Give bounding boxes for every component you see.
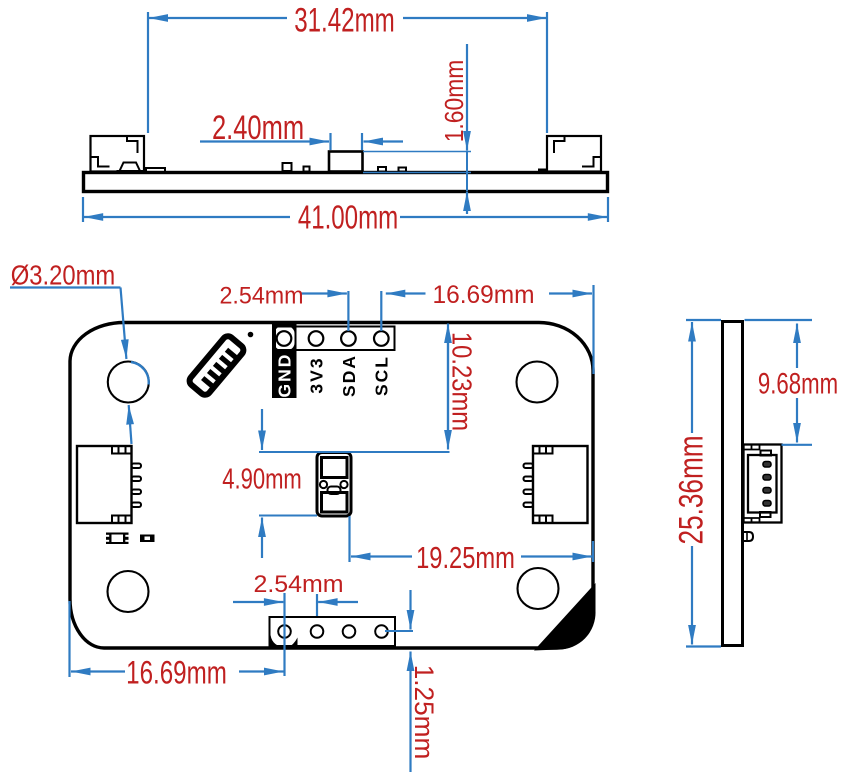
svg-text:3V3: 3V3 [306,356,326,393]
svg-text:1.25mm: 1.25mm [409,665,439,760]
svg-text:10.23mm: 10.23mm [446,332,478,431]
svg-text:16.69mm: 16.69mm [432,282,534,309]
svg-text:25.36mm: 25.36mm [674,435,711,544]
svg-text:2.40mm: 2.40mm [212,110,304,147]
svg-text:9.68mm: 9.68mm [758,366,838,400]
svg-text:31.42mm: 31.42mm [294,2,395,40]
svg-text:2.54mm: 2.54mm [253,572,343,598]
svg-text:1.60mm: 1.60mm [441,60,470,143]
svg-text:41.00mm: 41.00mm [298,200,398,237]
svg-text:2.54mm: 2.54mm [219,283,303,309]
svg-text:Ø3.20mm: Ø3.20mm [11,259,115,291]
svg-text:GND: GND [274,353,294,398]
svg-text:SDA: SDA [339,354,359,397]
svg-text:16.69mm: 16.69mm [126,655,227,691]
svg-text:SCL: SCL [372,355,392,396]
svg-text:19.25mm: 19.25mm [416,540,515,575]
svg-text:4.90mm: 4.90mm [222,464,302,496]
